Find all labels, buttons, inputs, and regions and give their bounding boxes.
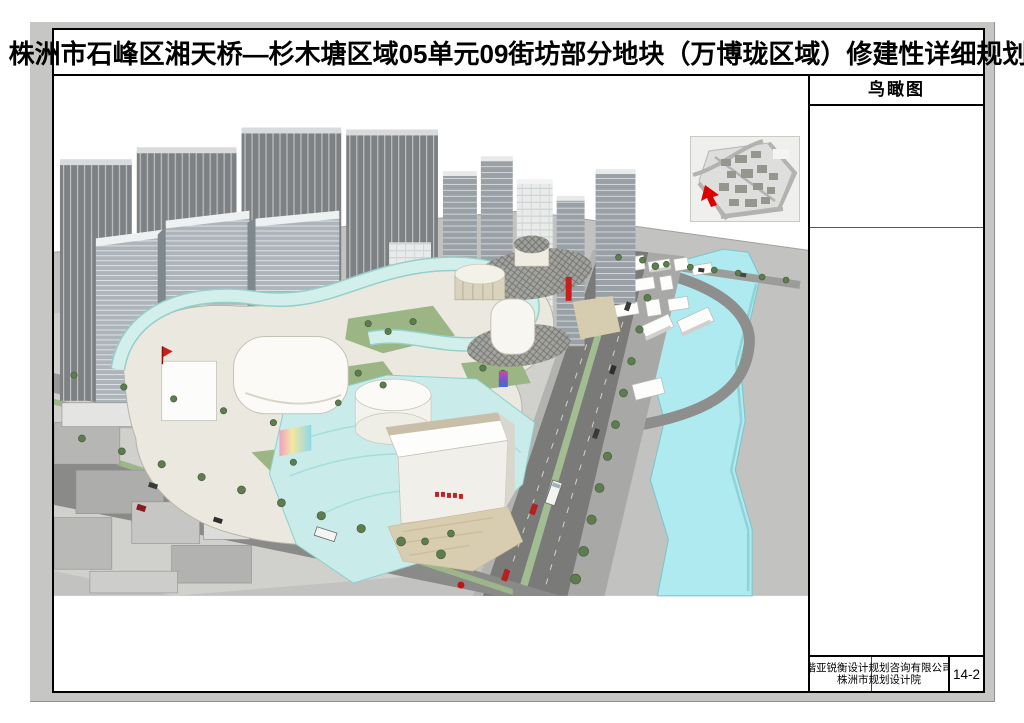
red-banner bbox=[566, 277, 572, 301]
institute-name: 株洲市规划设计院 bbox=[837, 674, 921, 686]
gradient-billboard bbox=[499, 371, 508, 387]
sidebar-empty-cell-1 bbox=[810, 106, 983, 228]
anchor-store-box bbox=[386, 413, 515, 524]
company-cell: 楷亚锐衡设计规划咨询有限公司 株洲市规划设计院 bbox=[810, 657, 950, 691]
drawing-sheet: 株洲市石峰区湘天桥—杉木塘区域05单元09街坊部分地块（万博珑区域）修建性详细规… bbox=[52, 28, 985, 693]
title-bar: 株洲市石峰区湘天桥—杉木塘区域05单元09街坊部分地块（万博珑区域）修建性详细规… bbox=[54, 30, 983, 76]
sheet-number-cell: 14-2 bbox=[950, 657, 983, 691]
drawing-title: 株洲市石峰区湘天桥—杉木塘区域05单元09街坊部分地块（万博珑区域）修建性详细规… bbox=[9, 34, 1024, 71]
view-label-header: 鸟瞰图 bbox=[810, 76, 983, 106]
title-block: 楷亚锐衡设计规划咨询有限公司 株洲市规划设计院 14-2 bbox=[810, 655, 983, 691]
sheet-number: 14-2 bbox=[953, 667, 980, 682]
company-name: 楷亚锐衡设计规划咨询有限公司 bbox=[810, 662, 950, 674]
s-building bbox=[491, 299, 535, 354]
sidebar-empty-cell-2 bbox=[810, 228, 983, 655]
striped-drum bbox=[455, 264, 505, 300]
white-annex-box bbox=[162, 361, 217, 420]
red-plaza-sculpture bbox=[457, 582, 464, 589]
screenshot-stage: 株洲市石峰区湘天桥—杉木塘区域05单元09街坊部分地块（万博珑区域）修建性详细规… bbox=[0, 0, 1024, 723]
inset-location-map bbox=[690, 136, 800, 222]
sidebar: 鸟瞰图 楷亚锐衡设计规划咨询有限公司 株洲市规划设计院 14-2 bbox=[808, 76, 983, 691]
dome-drum bbox=[514, 235, 550, 266]
white-blob-building bbox=[234, 336, 349, 413]
aerial-rendering-canvas bbox=[54, 76, 808, 691]
